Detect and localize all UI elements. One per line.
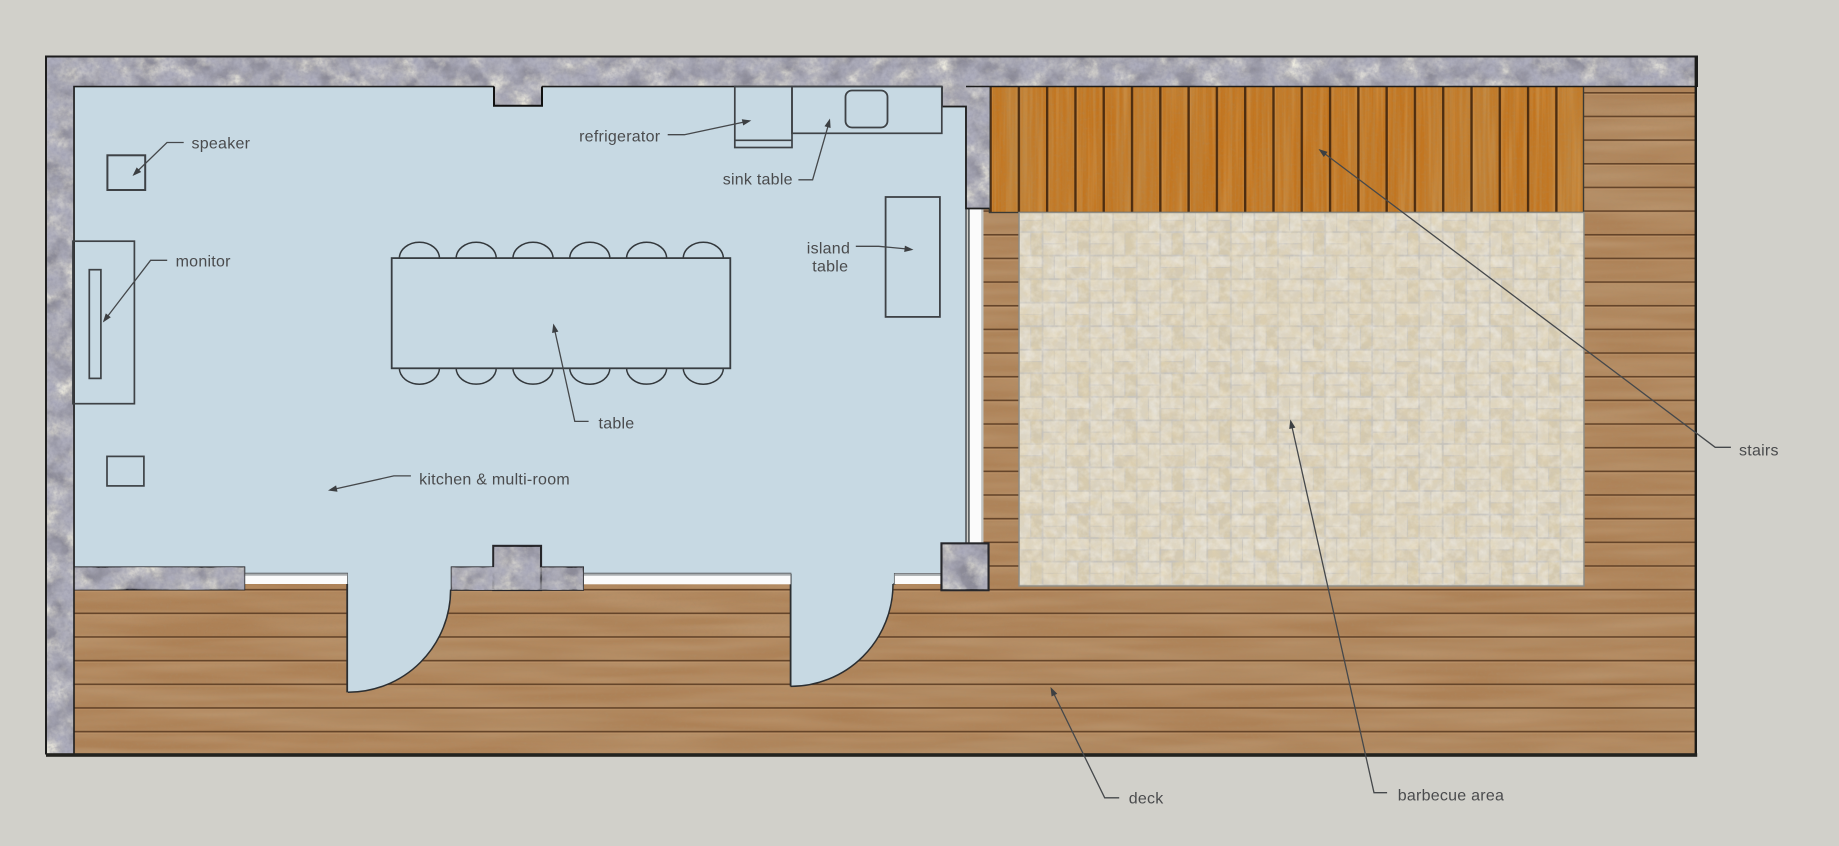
svg-text:table: table: [599, 415, 635, 432]
svg-text:refrigerator: refrigerator: [579, 129, 661, 146]
svg-text:deck: deck: [1129, 791, 1165, 808]
svg-text:stairs: stairs: [1739, 443, 1779, 460]
svg-text:speaker: speaker: [192, 136, 251, 153]
svg-text:kitchen & multi-room: kitchen & multi-room: [419, 471, 570, 488]
svg-text:table: table: [812, 258, 848, 275]
svg-text:monitor: monitor: [176, 254, 232, 271]
svg-text:sink table: sink table: [723, 172, 793, 189]
svg-text:island: island: [807, 241, 850, 258]
svg-text:barbecue area: barbecue area: [1398, 788, 1504, 805]
